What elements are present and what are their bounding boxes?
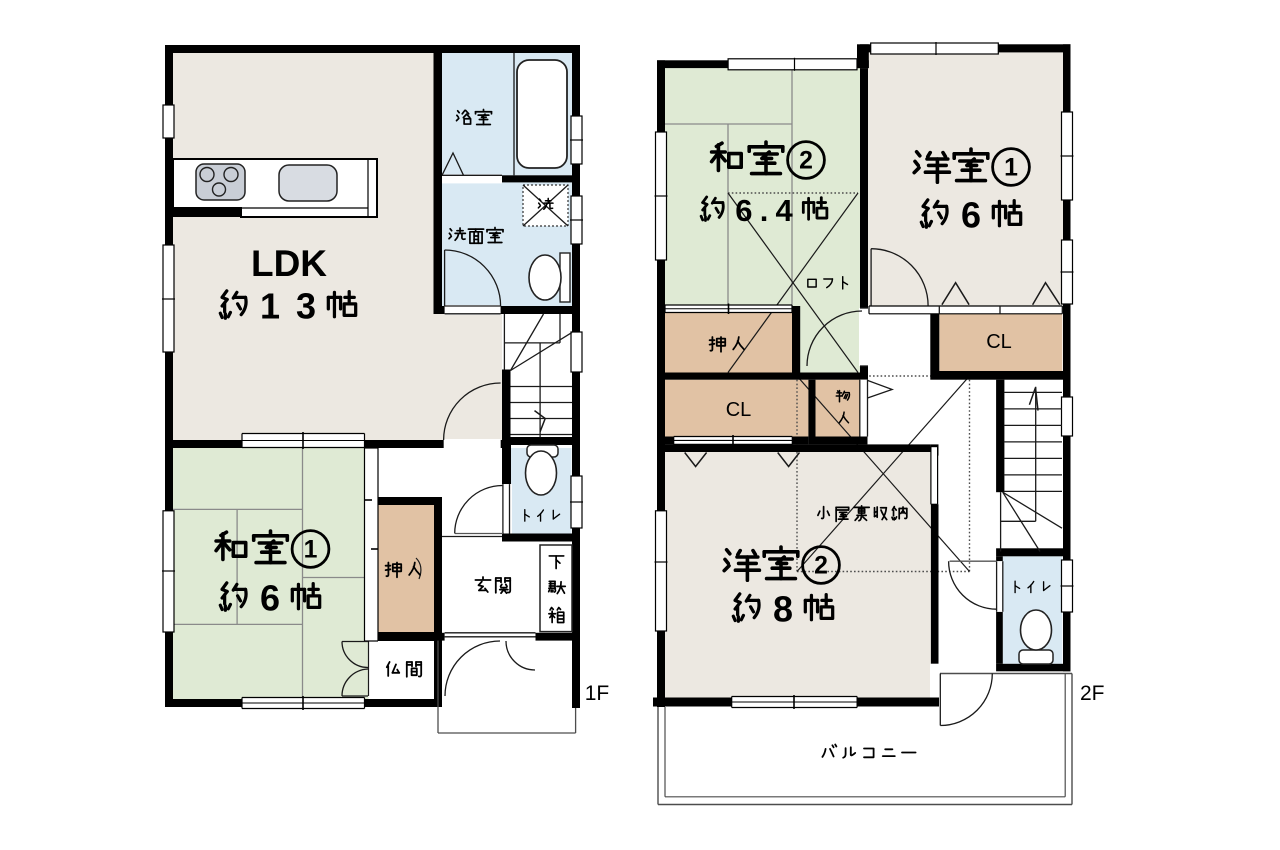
svg-text:6: 6	[260, 578, 280, 619]
svg-text:1: 1	[260, 286, 280, 327]
svg-text:8: 8	[773, 589, 793, 630]
svg-text:CL: CL	[726, 399, 752, 421]
svg-text:LDK: LDK	[251, 243, 327, 284]
svg-text:1: 1	[304, 537, 318, 564]
svg-text:2: 2	[814, 553, 828, 580]
svg-text:2F: 2F	[1080, 682, 1105, 705]
svg-text:4: 4	[776, 193, 794, 228]
svg-text:2: 2	[799, 148, 813, 175]
svg-text:6: 6	[735, 193, 752, 228]
svg-text:1: 1	[1004, 155, 1018, 182]
svg-text:1F: 1F	[585, 682, 610, 705]
svg-text:.: .	[760, 193, 769, 228]
svg-text:CL: CL	[986, 331, 1012, 353]
svg-text:3: 3	[296, 286, 316, 327]
svg-text:6: 6	[961, 195, 981, 236]
